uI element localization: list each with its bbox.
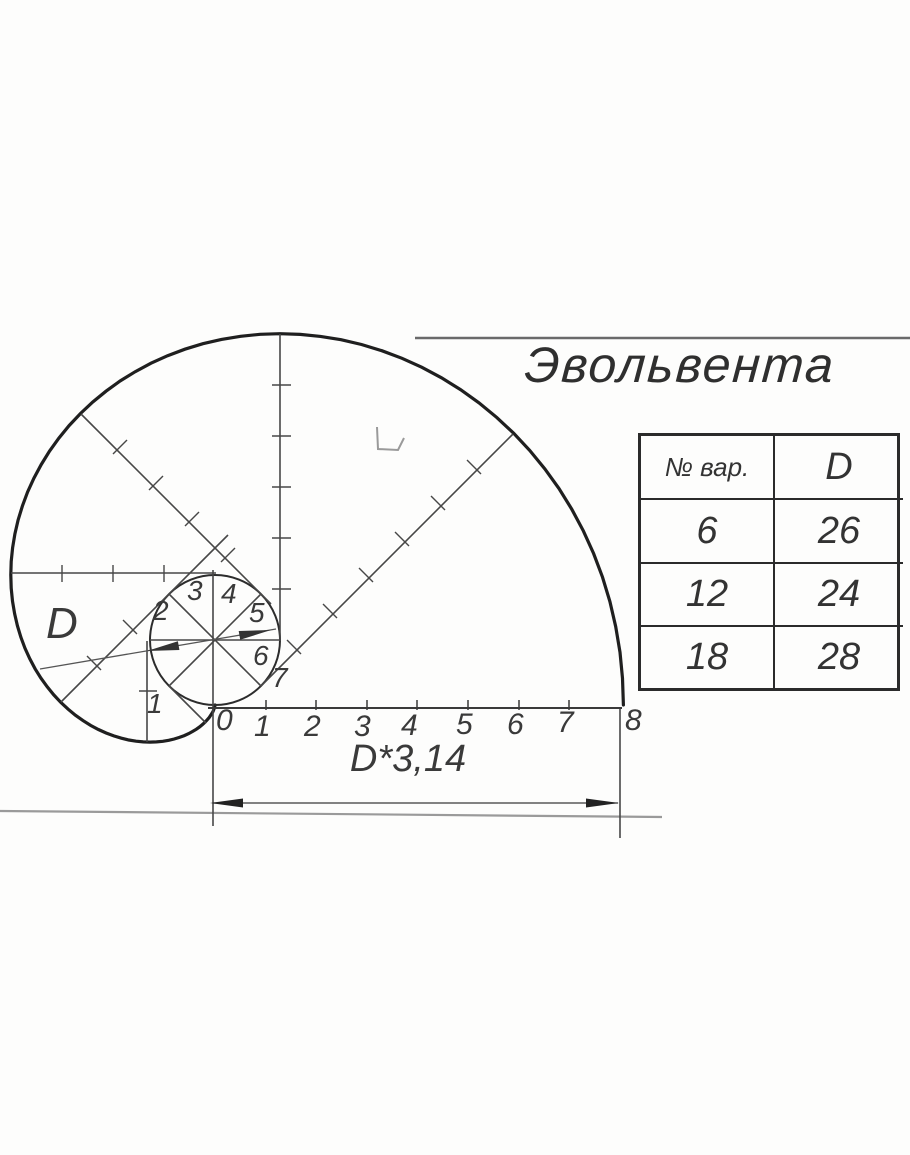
bottom-border-line [0, 811, 662, 817]
axis-label-3: 3 [354, 712, 371, 742]
axis-label-1: 1 [254, 712, 271, 742]
table-cell-diameter-3: 28 [775, 627, 903, 688]
tangent-7-ticks [287, 460, 481, 654]
diameter-label: D [46, 602, 78, 646]
diameter-arrow-right [239, 630, 271, 640]
tangent-5-ticks [113, 440, 235, 562]
tangent-line-1 [169, 686, 206, 723]
dimension-arrow-left [210, 799, 243, 808]
sector-label-3: 3 [187, 577, 203, 605]
axis-label-4: 4 [401, 711, 418, 741]
tangent-line-4 [11, 565, 216, 582]
table-cell-variant-2: 12 [641, 564, 775, 627]
tangent-line-6 [272, 334, 291, 641]
tangent-6-ticks [272, 385, 291, 589]
table-cell-diameter-2: 24 [775, 564, 903, 627]
tangent-3-ticks [87, 620, 137, 670]
tangent-line-5 [81, 414, 271, 604]
dimension-line [210, 799, 619, 808]
sector-label-5: 5 [249, 599, 265, 627]
table-header-variant: № вар. [641, 436, 775, 500]
drawing-sheet: Эвольвента D D*3,14 0 1 2 3 4 5 6 7 8 1 … [0, 0, 910, 1155]
involute-curve [11, 334, 624, 742]
axis-label-6: 6 [507, 710, 524, 740]
drawing-title: Эвольвента [523, 340, 837, 390]
sector-label-6: 6 [253, 642, 269, 670]
check-mark-icon [377, 427, 404, 450]
table-cell-variant-3: 18 [641, 627, 775, 688]
table-cell-variant-1: 6 [641, 500, 775, 564]
axis-label-5: 5 [456, 710, 473, 740]
axis-label-8: 8 [625, 706, 642, 736]
table-header-diameter: D [775, 436, 903, 500]
table-cell-diameter-1: 26 [775, 500, 903, 564]
variants-table: № вар. D 6 26 12 24 18 28 [638, 433, 900, 691]
axis-label-7: 7 [557, 708, 574, 738]
diameter-arrow-left [147, 641, 179, 651]
tangent-line-3 [61, 535, 228, 702]
dimension-arrow-right [586, 799, 619, 808]
tangent-line-7 [261, 434, 513, 686]
axis-label-0: 0 [216, 706, 233, 736]
circumference-label: D*3,14 [338, 740, 478, 778]
sector-label-1: 1 [147, 690, 163, 718]
sector-label-2: 2 [153, 597, 169, 625]
sector-label-4: 4 [221, 580, 237, 608]
sector-label-7: 7 [272, 664, 288, 692]
axis-label-2: 2 [304, 712, 321, 742]
